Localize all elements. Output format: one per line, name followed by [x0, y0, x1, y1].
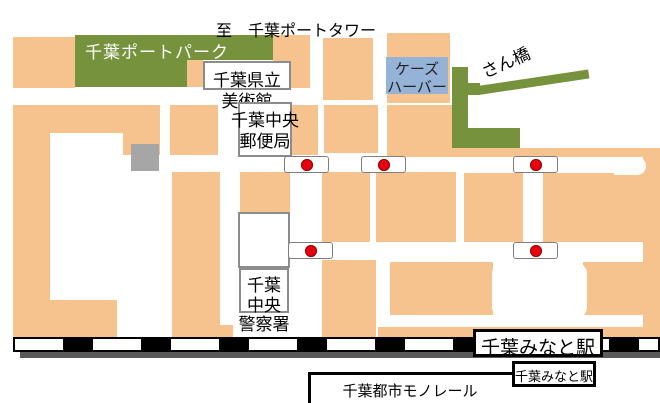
monorail-line	[308, 372, 311, 403]
city-block	[387, 105, 453, 157]
chiba-minato-area-map: 千葉ポートパーク さん橋 至 千葉ポートタワー ケーズ ハーバー 千葉県立 美術…	[0, 0, 660, 403]
city-block	[464, 173, 523, 242]
pier-area	[452, 128, 520, 148]
city-block	[643, 150, 660, 327]
city-block	[322, 172, 370, 242]
city-block	[323, 38, 373, 100]
building-gray	[131, 144, 159, 171]
police-label-line3: 警察署	[214, 310, 314, 335]
city-block	[390, 262, 493, 315]
pier-bridge-connector	[465, 83, 480, 95]
police-building-box	[238, 212, 290, 268]
port-park-label: 千葉ポートパーク	[85, 38, 229, 63]
traffic-light-red-dot	[305, 245, 317, 257]
city-block	[376, 172, 456, 242]
traffic-light	[288, 242, 333, 259]
street-rounded-end	[614, 157, 646, 175]
traffic-light	[361, 156, 406, 173]
city-block	[13, 105, 123, 133]
city-block	[543, 173, 643, 242]
traffic-light	[284, 156, 329, 173]
jr-station-label: 千葉みなと駅	[473, 333, 603, 360]
traffic-light	[513, 242, 558, 259]
destination-label: 至 千葉ポートタワー	[216, 17, 376, 41]
city-block	[13, 37, 75, 88]
city-block	[13, 300, 117, 338]
city-block	[583, 262, 643, 315]
city-block	[187, 60, 203, 87]
monorail-line	[308, 372, 514, 375]
traffic-light-red-dot	[530, 159, 542, 171]
city-block	[322, 260, 376, 338]
station-plaza	[492, 262, 587, 319]
monorail-station-label: 千葉みなと駅	[512, 366, 596, 385]
traffic-light-red-dot	[530, 245, 542, 257]
pier-label: さん橋	[477, 39, 534, 83]
city-block	[240, 172, 290, 212]
city-block	[170, 105, 218, 155]
traffic-light	[513, 156, 558, 173]
city-block	[324, 105, 378, 153]
city-block	[172, 172, 220, 325]
monorail-line-label: 千葉都市モノレール	[320, 380, 500, 401]
ks-harbor-label-line2: ハーバー	[384, 76, 450, 97]
traffic-light-red-dot	[378, 159, 390, 171]
traffic-light-red-dot	[301, 159, 313, 171]
post-office-label-line2: 郵便局	[238, 127, 292, 152]
city-block	[13, 133, 50, 300]
